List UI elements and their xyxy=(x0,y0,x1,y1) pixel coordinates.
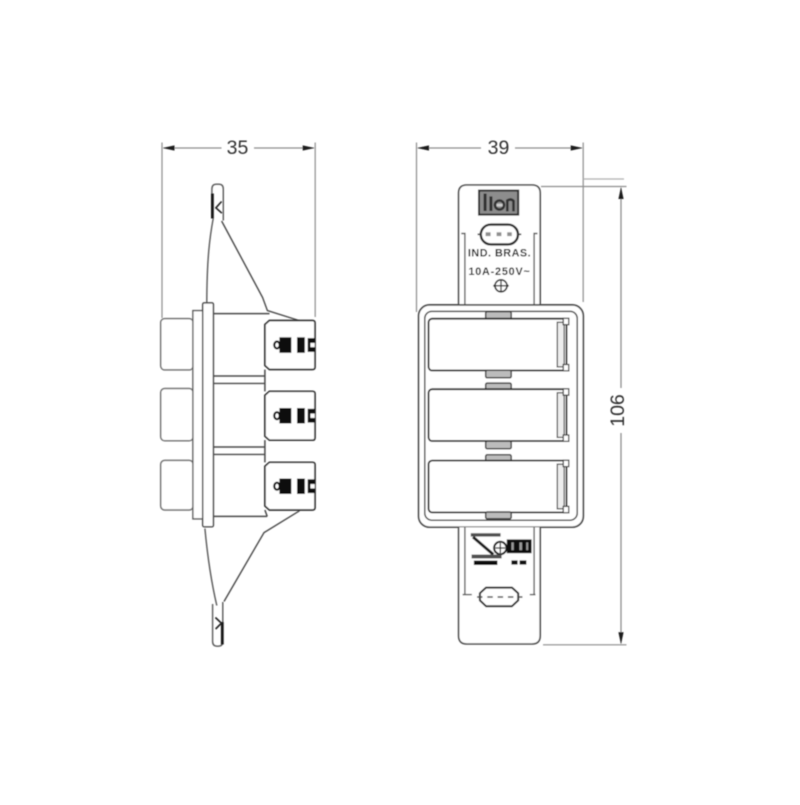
svg-text:39: 39 xyxy=(488,137,510,159)
svg-text:10A-250V~: 10A-250V~ xyxy=(468,266,530,278)
svg-text:35: 35 xyxy=(227,137,249,159)
svg-text:106: 106 xyxy=(607,394,629,427)
svg-text:IND. BRAS.: IND. BRAS. xyxy=(468,247,531,259)
